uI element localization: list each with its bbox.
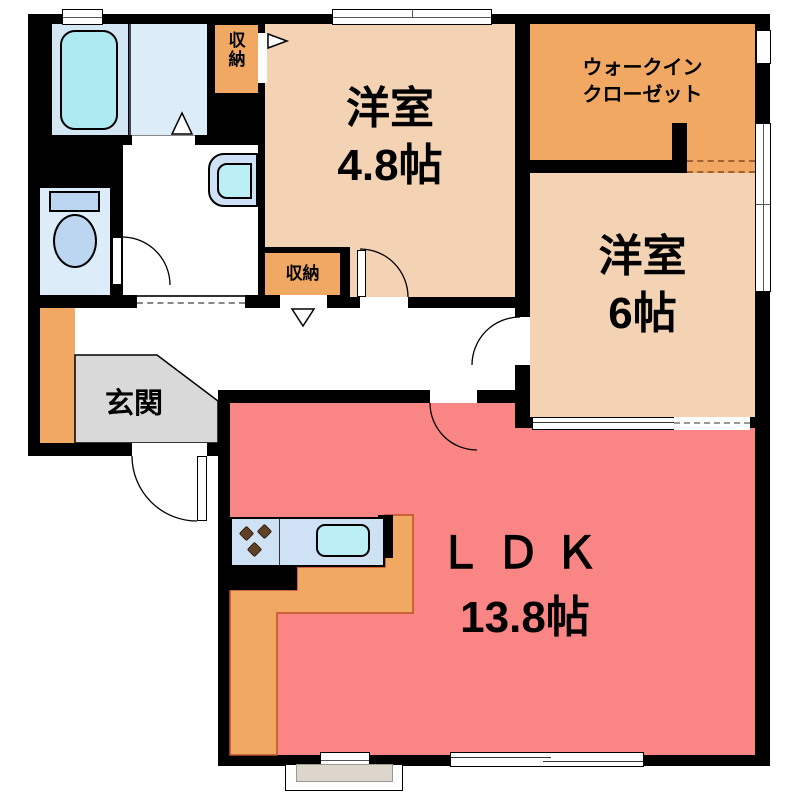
label-western-room-6: 洋室 6帖 bbox=[530, 228, 755, 342]
room-size: 13.8帖 bbox=[365, 586, 685, 650]
y48-door-arc bbox=[360, 249, 408, 297]
washroom-door-swing-triangle bbox=[172, 113, 192, 134]
room-name: 洋室 bbox=[530, 228, 755, 285]
storage-top-door-swing-triangle bbox=[268, 34, 287, 48]
label-storage-hall: 収納 bbox=[265, 265, 340, 284]
room-name: 洋室 bbox=[270, 80, 510, 137]
room-name: 玄関 bbox=[78, 386, 190, 424]
floor-plan: 洋室 4.8帖 ウォークイン クローゼット 洋室 6帖 ＬＤＫ 13.8帖 玄関… bbox=[0, 0, 800, 800]
room-name: ウォークイン bbox=[530, 55, 755, 82]
label-ldk: ＬＤＫ 13.8帖 bbox=[365, 522, 685, 650]
room-name: ＬＤＫ bbox=[365, 522, 685, 586]
toilet-door-arc bbox=[122, 237, 170, 285]
y6-door-arc bbox=[472, 317, 520, 365]
front-door-arc bbox=[132, 456, 197, 521]
label-walk-in-closet: ウォークイン クローゼット bbox=[530, 55, 755, 109]
storage-hall-door-swing-triangle bbox=[292, 309, 314, 326]
label-storage-top: 収納 bbox=[227, 32, 247, 69]
room-name: 収納 bbox=[265, 265, 340, 284]
label-western-room-48: 洋室 4.8帖 bbox=[270, 80, 510, 194]
room-name: クローゼット bbox=[530, 82, 755, 109]
room-size: 6帖 bbox=[530, 285, 755, 342]
room-size: 4.8帖 bbox=[270, 137, 510, 194]
ldk-door-arc bbox=[430, 403, 477, 450]
room-name: 収納 bbox=[227, 32, 247, 69]
label-entrance: 玄関 bbox=[78, 386, 190, 424]
